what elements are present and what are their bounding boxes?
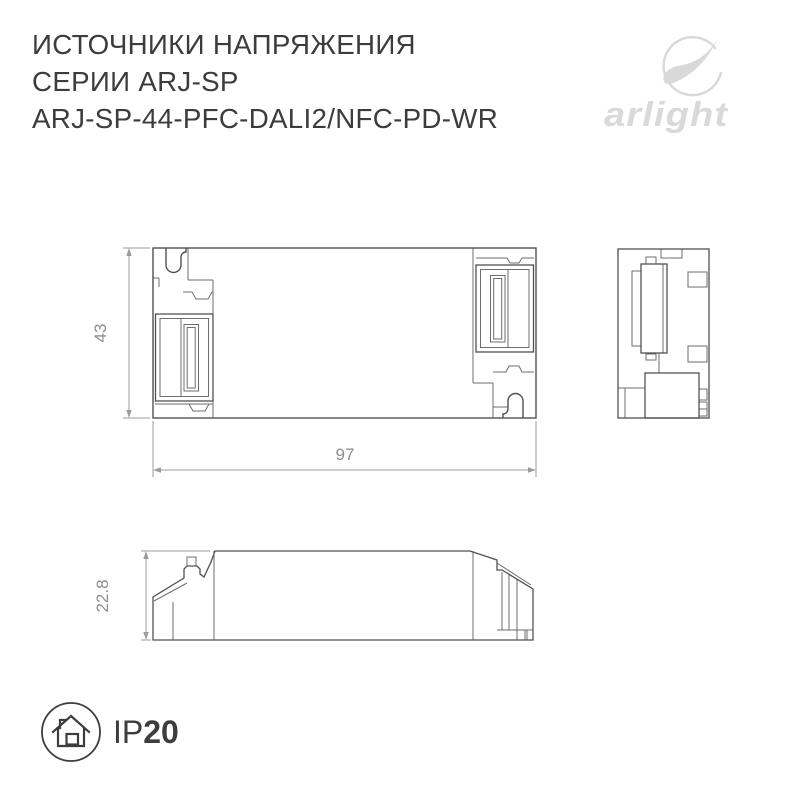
- side-view: [618, 249, 709, 418]
- ip-rating: IP20: [113, 714, 179, 751]
- indoor-house-icon: [40, 701, 102, 763]
- profile-view: [153, 551, 533, 640]
- ip-rating-value: 20: [143, 714, 179, 750]
- dimension-lines: [123, 248, 536, 640]
- dimension-label-width: 97: [336, 445, 355, 465]
- ip-rating-prefix: IP: [113, 714, 143, 750]
- dimension-label-height: 43: [91, 324, 111, 343]
- technical-drawing: [0, 0, 800, 800]
- terminal-block-right: [476, 265, 534, 352]
- dimension-label-depth: 22.8: [93, 579, 113, 612]
- top-view: [153, 248, 536, 418]
- terminal-block-left: [156, 314, 214, 401]
